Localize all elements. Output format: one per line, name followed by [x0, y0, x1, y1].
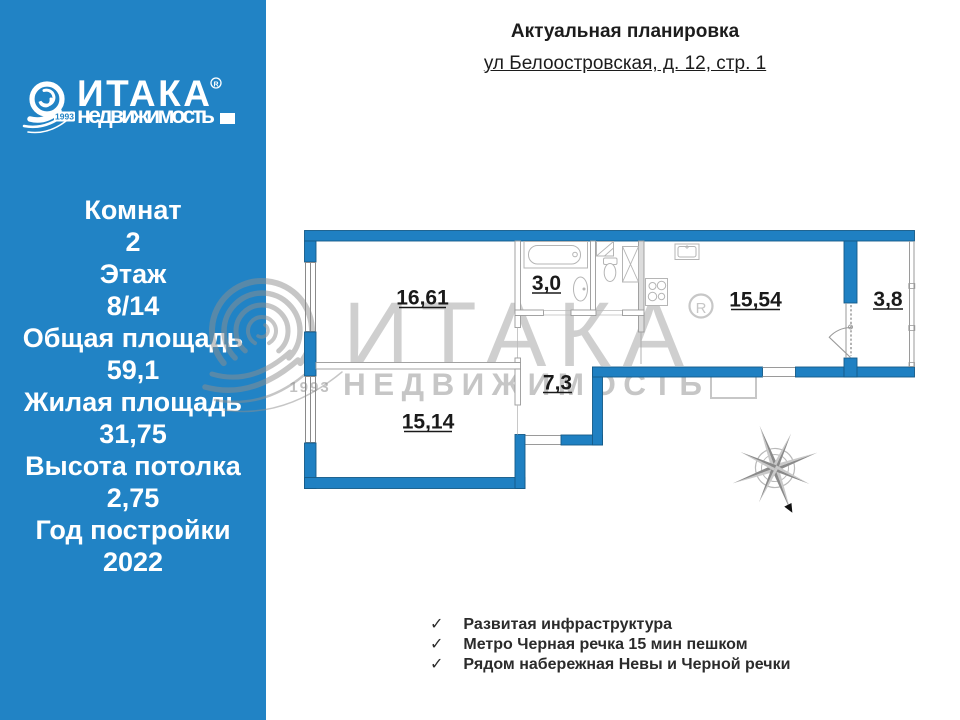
svg-text:7,3: 7,3: [543, 372, 572, 395]
svg-text:3,8: 3,8: [873, 288, 903, 311]
svg-text:R: R: [696, 300, 707, 317]
svg-text:15,14: 15,14: [402, 411, 455, 434]
svg-text:3,0: 3,0: [532, 272, 561, 295]
svg-text:15,54: 15,54: [729, 289, 782, 312]
svg-text:16,61: 16,61: [396, 287, 449, 310]
